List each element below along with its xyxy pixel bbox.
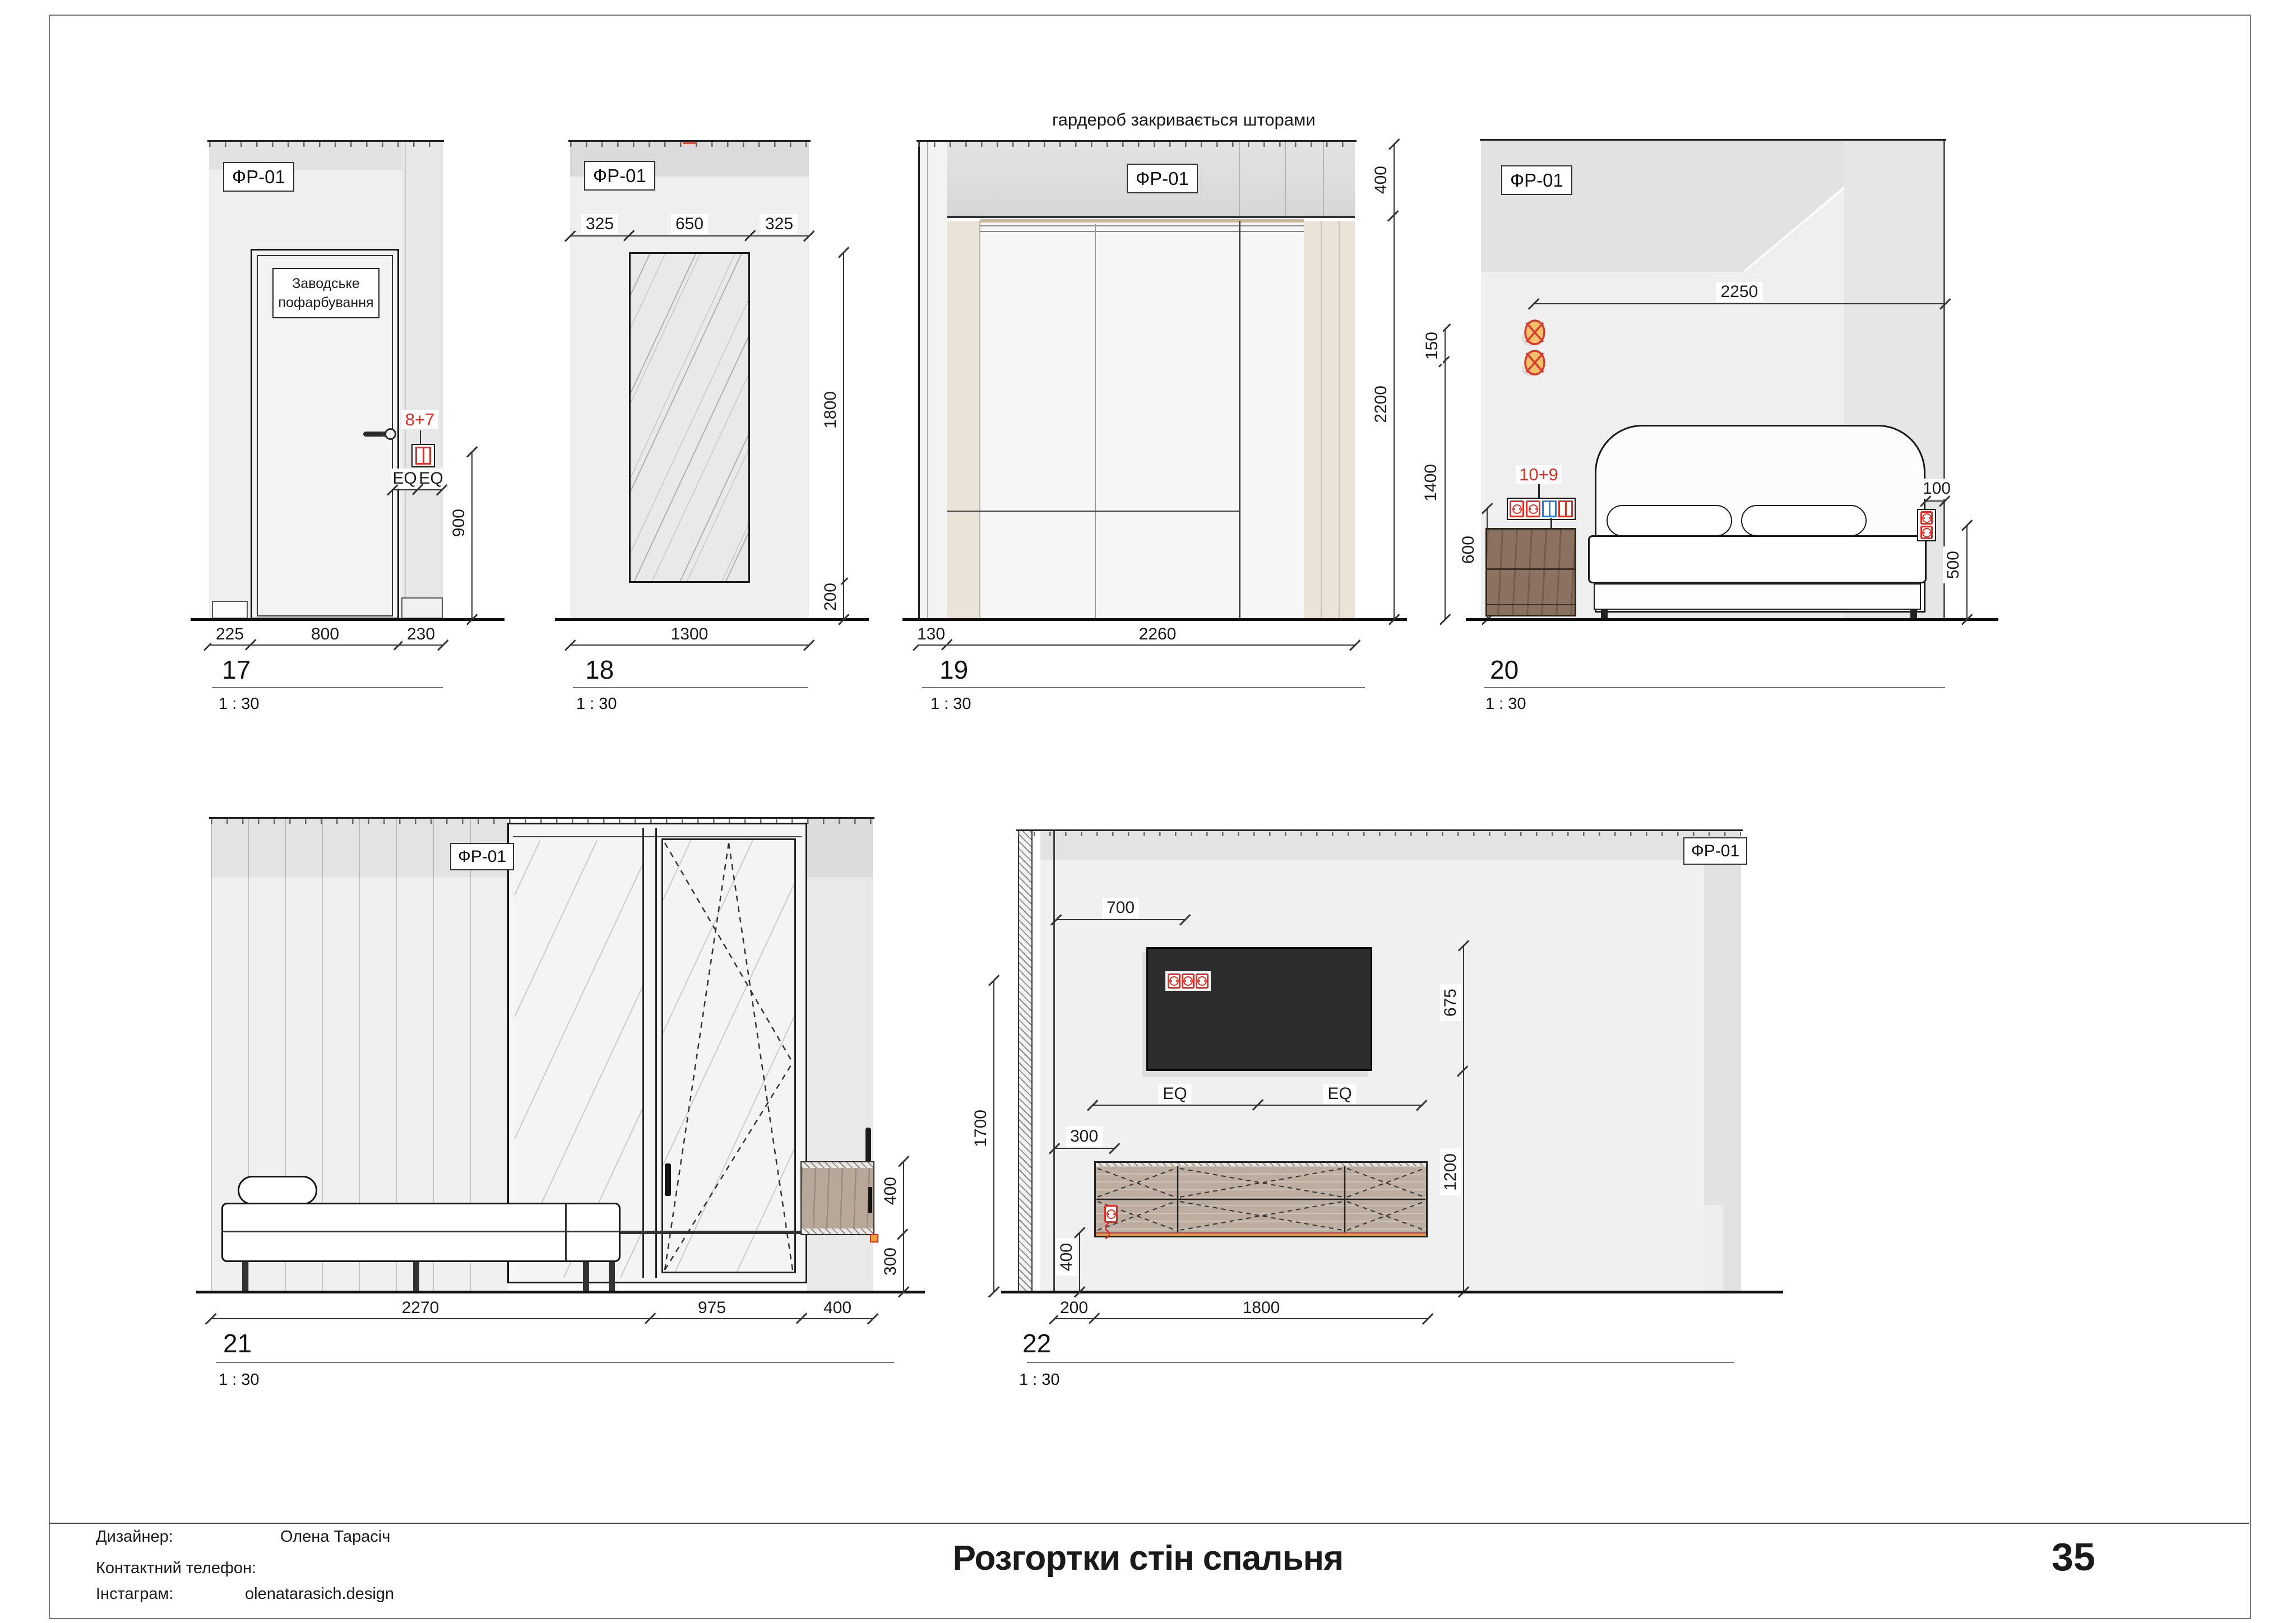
view-rule (212, 687, 443, 688)
footer-separator (49, 1523, 2249, 1524)
nightstand-base-line (1487, 604, 1575, 605)
dim-line-700 (1056, 919, 1185, 920)
window-mullion (642, 828, 644, 1278)
designer-label: Дизайнер: (96, 1528, 173, 1546)
dim-900: 900 (448, 504, 470, 541)
floor-line (1466, 618, 1998, 621)
floor-line (196, 1291, 925, 1293)
switch-red-icon (1558, 500, 1573, 517)
finish-tag: ФР-01 (450, 843, 514, 870)
tv-socket-group (1165, 971, 1211, 991)
ceiling-line (568, 140, 811, 142)
bed-base (1594, 583, 1921, 610)
dim-line-2250 (1534, 303, 1945, 304)
divider (1095, 224, 1096, 619)
view-number: 19 (939, 655, 968, 685)
sconce-icon (1521, 350, 1548, 378)
designer-value: Олена Тарасіч (280, 1528, 390, 1546)
view-scale: 1 : 30 (931, 695, 971, 713)
socket-cable-icon (1099, 1223, 1115, 1240)
curtain-rod (980, 219, 1304, 222)
mirror (629, 252, 750, 583)
ceiling-ticks (1018, 832, 1741, 836)
pelmet-bottom-line (947, 216, 1355, 218)
socket-icon (1510, 500, 1524, 517)
dim-1700: 1700 (970, 1105, 992, 1152)
floor-line (902, 618, 1407, 621)
socket-group (1507, 498, 1576, 520)
dim-2270: 2270 (397, 1298, 444, 1318)
dim-600: 600 (1458, 531, 1479, 568)
eq-label-1: EQ (1158, 1084, 1191, 1104)
tv-stand-fronts (1094, 1161, 1428, 1237)
baseboard-box-right (401, 597, 443, 619)
wall-right-strip-band (807, 818, 873, 877)
dim-1400: 1400 (1420, 460, 1442, 506)
eq-label-2: EQ (1323, 1084, 1356, 1104)
cabinet-top-edge (802, 1162, 873, 1168)
ceiling-line (207, 140, 444, 142)
dim-line-bottom (918, 644, 1355, 646)
dim-1800: 1800 (1238, 1298, 1285, 1318)
dim-line-bottom (1054, 1318, 1428, 1319)
dim-400: 400 (1371, 161, 1392, 198)
instagram-value: olenatarasich.design (245, 1585, 394, 1603)
dim-line-right (843, 252, 844, 619)
bed-leg (1910, 610, 1917, 619)
dim-400b: 400 (819, 1298, 856, 1318)
dim-230: 230 (402, 624, 439, 644)
dim-975: 975 (693, 1298, 730, 1318)
divider (1239, 221, 1240, 619)
finish-tag: ФР-01 (1683, 837, 1747, 865)
switch-box (411, 444, 435, 467)
dim-1200: 1200 (1440, 1149, 1461, 1195)
wardrobe-caption: гардероб закривається шторами (1052, 110, 1316, 130)
floor-line (1001, 1291, 1783, 1293)
wall-side-column-step (1704, 1205, 1723, 1292)
bed-leg (242, 1262, 248, 1292)
bed-side (221, 1203, 621, 1262)
dim-line-900 (471, 452, 473, 619)
socket-pair-box (1917, 509, 1936, 541)
view-scale: 1 : 30 (219, 1371, 260, 1389)
wardrobe-body (947, 221, 1355, 619)
door-note-line1: Заводське (292, 274, 360, 293)
dim-130: 130 (915, 624, 947, 644)
dim-675: 675 (1440, 984, 1461, 1021)
rod-line (980, 225, 1304, 226)
dim-400: 400 (880, 1172, 901, 1209)
window-head-line (513, 836, 802, 837)
dim-150: 150 (1422, 327, 1443, 364)
leader-line (1538, 484, 1540, 499)
stand-socket-icon (1104, 1205, 1118, 1223)
bed-side-line (223, 1231, 619, 1232)
wall-side-strip (402, 141, 443, 619)
dim-line-300 (1054, 1148, 1114, 1149)
panel-joint (1321, 221, 1322, 619)
dim-400: 400 (1056, 1239, 1077, 1276)
baseboard-box-left (212, 601, 248, 619)
dim-225: 225 (211, 624, 248, 644)
dim-800: 800 (307, 624, 344, 644)
sconce-icon (1521, 319, 1548, 347)
dim-line-top (570, 235, 809, 237)
socket-icon (1920, 511, 1933, 525)
strip-line (927, 141, 928, 619)
pelmet-joint (1239, 141, 1240, 216)
socket-icon (1526, 500, 1540, 517)
strip-line (405, 141, 406, 619)
dim-700: 700 (1102, 898, 1139, 918)
finish-tag: ФР-01 (223, 162, 294, 192)
phone-label: Контактний телефон: (96, 1559, 256, 1578)
cabinet-socket-marker (870, 1234, 878, 1242)
floor-line (191, 618, 504, 621)
dim-300: 300 (1066, 1126, 1103, 1147)
dim-line-400 (1079, 1232, 1080, 1292)
view-scale: 1 : 30 (1485, 695, 1526, 713)
dim-1300: 1300 (666, 624, 713, 644)
socket-tag-top: 10+9 (1516, 465, 1562, 484)
socket-icon (1182, 973, 1195, 989)
instagram-label: Інстаграм: (96, 1585, 174, 1603)
window-handle (665, 1163, 671, 1196)
floor-line (555, 618, 869, 621)
rod-line (980, 231, 1304, 232)
leader-line (420, 430, 421, 444)
socket-icon (1168, 973, 1181, 989)
view-number: 20 (1490, 655, 1519, 685)
dim-line-right (903, 1161, 904, 1292)
view-rule (1027, 1362, 1734, 1363)
dim-1800: 1800 (820, 387, 841, 433)
dim-line-bottom (211, 1318, 873, 1319)
dim-2250: 2250 (1716, 282, 1763, 302)
dim-line-1700 (993, 980, 994, 1292)
bed-leg (1601, 610, 1608, 619)
dim-300: 300 (880, 1243, 901, 1280)
view-scale: 1 : 30 (1019, 1371, 1060, 1389)
wardrobe-right-panel (1304, 221, 1355, 619)
dim-650: 650 (671, 214, 708, 234)
view-number: 22 (1022, 1328, 1051, 1358)
finish-tag: ФР-01 (1127, 164, 1198, 193)
socket-tag-label: 8+7 (402, 410, 438, 429)
finish-tag: ФР-01 (584, 161, 655, 191)
panel-joint (1339, 221, 1340, 619)
bed-pillow (238, 1176, 317, 1205)
bed-leg (609, 1262, 615, 1292)
dim-line-left-chain (1445, 329, 1446, 619)
bed-pillow (1607, 505, 1732, 536)
bed-leg (583, 1262, 589, 1292)
page-number: 35 (2052, 1534, 2095, 1579)
dim-2260: 2260 (1135, 624, 1181, 644)
view-rule (573, 687, 808, 688)
switch-blue-icon (1542, 500, 1557, 517)
bed-side-divider (565, 1204, 567, 1261)
sash-opening-symbol (661, 838, 796, 1273)
shelf-line (947, 511, 1239, 512)
nightstand-drawer-line (1487, 568, 1575, 570)
ceiling-line (209, 817, 874, 819)
cabinet-bottom-edge (802, 1228, 873, 1234)
view-number: 18 (585, 655, 614, 685)
ceiling-ticks (209, 142, 443, 147)
bed-leg (413, 1262, 419, 1292)
view-number: 21 (223, 1328, 252, 1358)
ceiling-ticks (918, 142, 1355, 147)
pelmet-joint (1323, 141, 1324, 216)
bed-mattress (1588, 535, 1927, 583)
ceiling-line (1480, 139, 1946, 141)
dim-line-bottom (570, 644, 809, 646)
door-handle-rose (385, 428, 396, 440)
dim-line-100 (1925, 500, 1945, 502)
wall-edge-line (1053, 831, 1055, 1292)
socket-icon (1920, 526, 1933, 539)
dim-200: 200 (1058, 1298, 1090, 1318)
ceiling-line (916, 140, 1357, 142)
bed-pillow (1741, 505, 1867, 536)
window-jamb-strip (1018, 831, 1033, 1292)
dim-325-right: 325 (761, 214, 798, 234)
dim-200: 200 (820, 578, 841, 615)
view-rule (1484, 687, 1945, 688)
view-scale: 1 : 30 (576, 695, 617, 713)
pelmet-joint (1285, 141, 1286, 216)
dim-325-left: 325 (581, 214, 618, 234)
ceiling-line (1016, 829, 1743, 831)
nightstand (1485, 528, 1576, 616)
view-number: 17 (222, 655, 251, 685)
wall-cabinet (800, 1161, 874, 1235)
dim-line-500 (1966, 525, 1968, 619)
wardrobe-left-panel (947, 221, 980, 619)
dim-500: 500 (1943, 546, 1964, 583)
tv (1146, 947, 1372, 1071)
cabinet-handle (868, 1187, 872, 1213)
ceiling-ticks (570, 142, 809, 147)
dim-line-675-1200 (1463, 945, 1464, 1292)
window-mullion (655, 828, 657, 1278)
switch-icon (415, 447, 431, 465)
dim-2200: 2200 (1371, 381, 1392, 428)
view-rule (216, 1362, 894, 1363)
door-note-line2: пофарбування (278, 293, 373, 312)
wall-return-strip (918, 141, 947, 619)
door-finish-note: Заводське пофарбування (272, 268, 379, 318)
view-rule (922, 687, 1365, 688)
drawing-sheet: Заводське пофарбування 8+7 EQ EQ 900 225… (0, 0, 2296, 1623)
sheet-title: Розгортки стін спальня (953, 1538, 1344, 1578)
view-scale: 1 : 30 (219, 695, 260, 713)
dim-line-bottom (209, 644, 443, 646)
socket-icon (1196, 973, 1209, 989)
finish-tag: ФР-01 (1501, 165, 1572, 195)
